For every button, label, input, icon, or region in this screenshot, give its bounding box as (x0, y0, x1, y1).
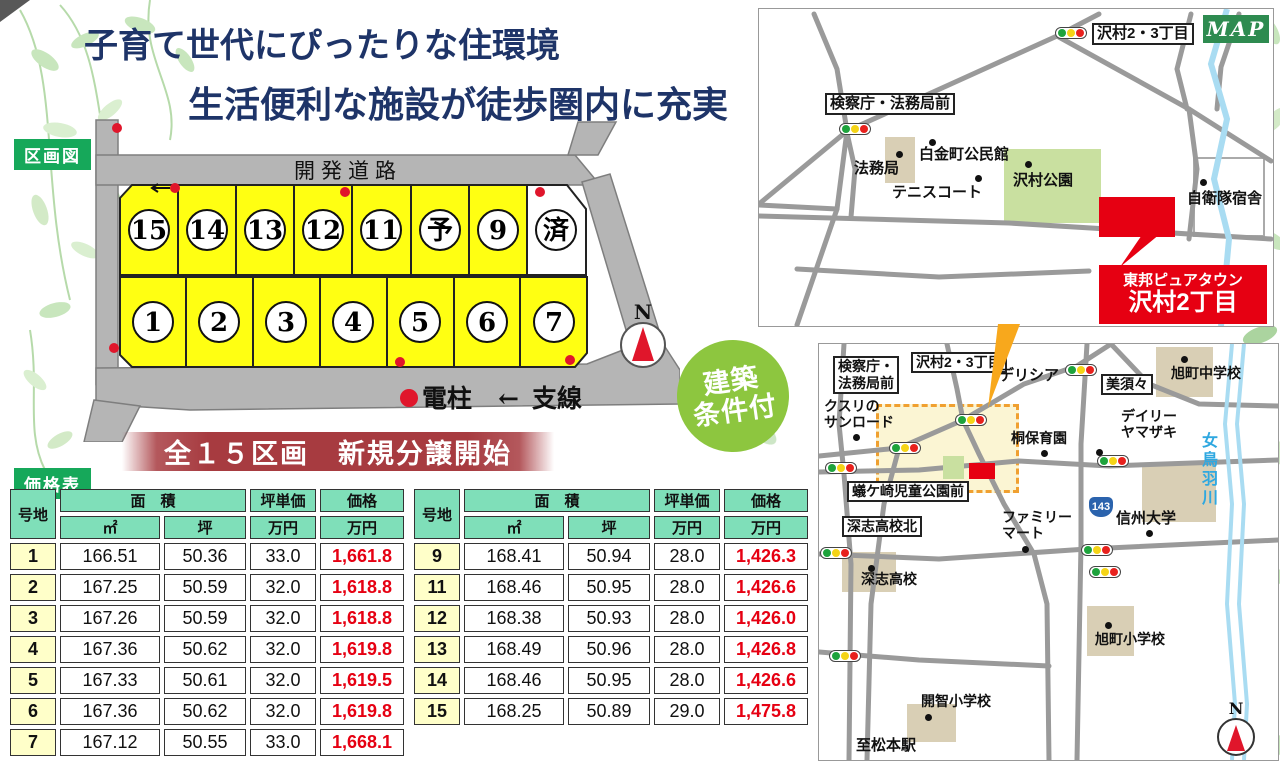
table-row: 14168.4650.9528.01,426.6 (414, 667, 808, 694)
map-wide-area: MAP 沢村2・3丁目 検察庁・法務局前 法務局 白金町公民館 テニスコート 沢… (758, 8, 1274, 327)
col-header-sqm: ㎡ (60, 516, 160, 539)
col-header-price: 価格 (724, 489, 808, 512)
map1-label-shirokane: 白金町公民館 (919, 147, 1009, 164)
legend-pole-dot (400, 389, 418, 407)
price-table-left: 号地 面 積 坪単価 価格 ㎡ 坪 万円 万円 1166.5150.3633.0… (6, 485, 408, 760)
map2-label-daily: デイリー ヤマザキ (1121, 409, 1177, 440)
table-row: 1166.5150.3633.01,661.8 (10, 543, 404, 570)
park-patch (943, 456, 964, 479)
legend-pole-label: 電柱 (422, 384, 472, 413)
svg-text:N: N (634, 300, 652, 324)
flyer-canvas: { "title": { "line1": "子育て世代にぴったりな住環境", … (0, 0, 1280, 761)
col-header-tsubo: 坪 (568, 516, 650, 539)
map-badge: MAP (1203, 15, 1269, 43)
table-row: 4167.3650.6232.01,619.8 (10, 636, 404, 663)
callout-line2: 沢村2丁目 (1128, 290, 1237, 316)
table-row: 11168.4650.9528.01,426.6 (414, 574, 808, 601)
map1-label-jieitai: 自衛隊宿舎 (1187, 191, 1262, 208)
route-143-shield: 143 (1089, 497, 1113, 517)
table-row: 3167.2650.5932.01,618.8 (10, 605, 404, 632)
site-highlight-map2 (969, 463, 995, 479)
lot-label-reserved: 予 (427, 216, 453, 246)
map2-label-fukashi-kita: 深志高校北 (842, 516, 922, 537)
map2-label-asahi-es: 旭町小学校 (1095, 632, 1165, 648)
map-link-arrow (980, 324, 1030, 410)
lot-label: 13 (247, 216, 283, 246)
col-header-lot: 号地 (10, 489, 56, 539)
lot-label: 15 (131, 216, 167, 246)
col-header-price: 価格 (320, 489, 404, 512)
map1-label-park: 沢村公園 (1013, 173, 1073, 190)
lot-label: 4 (344, 308, 362, 338)
map2-label-fukashi: 深志高校 (861, 572, 917, 588)
lot-label: 12 (305, 216, 341, 246)
traffic-signal (955, 414, 987, 426)
lot-label: 2 (210, 308, 228, 338)
lot-label: 14 (189, 216, 225, 246)
table-row: 9168.4150.9428.01,426.3 (414, 543, 808, 570)
traffic-signal (1081, 544, 1113, 556)
traffic-signal (1097, 455, 1129, 467)
lot-plan-diagram: 15 14 13 12 11 予 9 済 1 2 3 4 5 6 7 開発道路 … (70, 112, 680, 442)
table-row: 7167.1250.5533.01,668.1 (10, 729, 404, 756)
map2-label-misuzu: 美須々 (1101, 374, 1153, 395)
traffic-signal (829, 650, 861, 662)
col-header-tsubo: 坪 (164, 516, 246, 539)
map1-label-homukyoku: 法務局 (854, 161, 899, 178)
map2-label-matsumoto: 至松本駅 (856, 738, 916, 755)
col-header-unitprice: 坪単価 (250, 489, 316, 512)
map-detail-area: 検察庁・ 法務局前 沢村2・3丁目 デリシア 美須々 旭町中学校 クスリの サン… (818, 343, 1279, 761)
table-row: 6167.3650.6232.01,619.8 (10, 698, 404, 725)
col-header-man1: 万円 (654, 516, 720, 539)
lot-label: 3 (277, 308, 295, 338)
map2-label-asahi-jhs: 旭町中学校 (1171, 366, 1241, 382)
callout-line1: 東邦ピュアタウン (1123, 273, 1243, 290)
map1-label-sawamura23: 沢村2・3丁目 (1092, 23, 1194, 45)
col-header-unitprice: 坪単価 (654, 489, 720, 512)
map2-label-kiri: 桐保育園 (1011, 431, 1067, 447)
table-row: 15168.2550.8929.01,475.8 (414, 698, 808, 725)
map1-label-kensatsucho: 検察庁・法務局前 (825, 93, 955, 115)
callout-pointer (1114, 229, 1174, 269)
map2-label-kaichi: 開智小学校 (921, 694, 991, 710)
col-header-sqm: ㎡ (464, 516, 564, 539)
map1-label-tennis: テニスコート (892, 185, 982, 202)
map2-label-arigasaki: 蟻ケ崎児童公園前 (847, 481, 969, 502)
sales-banner: 全１５区画 新規分譲開始 (122, 432, 554, 471)
table-row: 13168.4950.9628.01,426.8 (414, 636, 808, 663)
traffic-signal (825, 462, 857, 474)
map2-label-kensatsu: 検察庁・ 法務局前 (833, 356, 899, 394)
lot-label: 1 (144, 308, 162, 338)
site-callout: 東邦ピュアタウン 沢村2丁目 (1099, 265, 1267, 324)
table-row: 12168.3850.9328.01,426.0 (414, 605, 808, 632)
traffic-signal (839, 123, 871, 135)
headline-line1: 子育て世代にぴったりな住環境 (84, 18, 560, 67)
traffic-signal (1065, 364, 1097, 376)
traffic-signal (889, 442, 921, 454)
river-name-label: 女鳥羽川 (1195, 432, 1219, 508)
lot-label: 6 (478, 308, 496, 338)
lot-label-sold: 済 (543, 215, 570, 246)
lot-label: 11 (363, 216, 399, 246)
price-table-right: 号地 面 積 坪単価 価格 ㎡ 坪 万円 万円 9168.4150.9428.0… (410, 485, 812, 729)
map2-compass: N (1217, 699, 1255, 756)
traffic-signal (820, 547, 852, 559)
legend-arrow-icon: ← (498, 384, 519, 413)
col-header-man1: 万円 (250, 516, 316, 539)
table-row: 2167.2550.5932.01,618.8 (10, 574, 404, 601)
road-name-label: 開発道路 (294, 159, 402, 183)
table-row: 5167.3350.6132.01,619.5 (10, 667, 404, 694)
col-header-area: 面 積 (464, 489, 650, 512)
map2-label-kusuri: クスリの サンロード (824, 399, 894, 430)
col-header-area: 面 積 (60, 489, 246, 512)
col-header-lot: 号地 (414, 489, 460, 539)
map2-label-family: ファミリー マート (1002, 510, 1072, 541)
road-top-exit (568, 122, 616, 155)
lot-label: 5 (411, 308, 429, 338)
traffic-signal (1089, 566, 1121, 578)
col-header-man2: 万円 (320, 516, 404, 539)
lot-label: 7 (545, 308, 563, 338)
lot-label: 9 (489, 216, 507, 246)
legend-wire-label: 支線 (532, 384, 582, 413)
traffic-signal (1055, 27, 1087, 39)
map2-label-shinshu: 信州大学 (1116, 511, 1176, 528)
col-header-man2: 万円 (724, 516, 808, 539)
